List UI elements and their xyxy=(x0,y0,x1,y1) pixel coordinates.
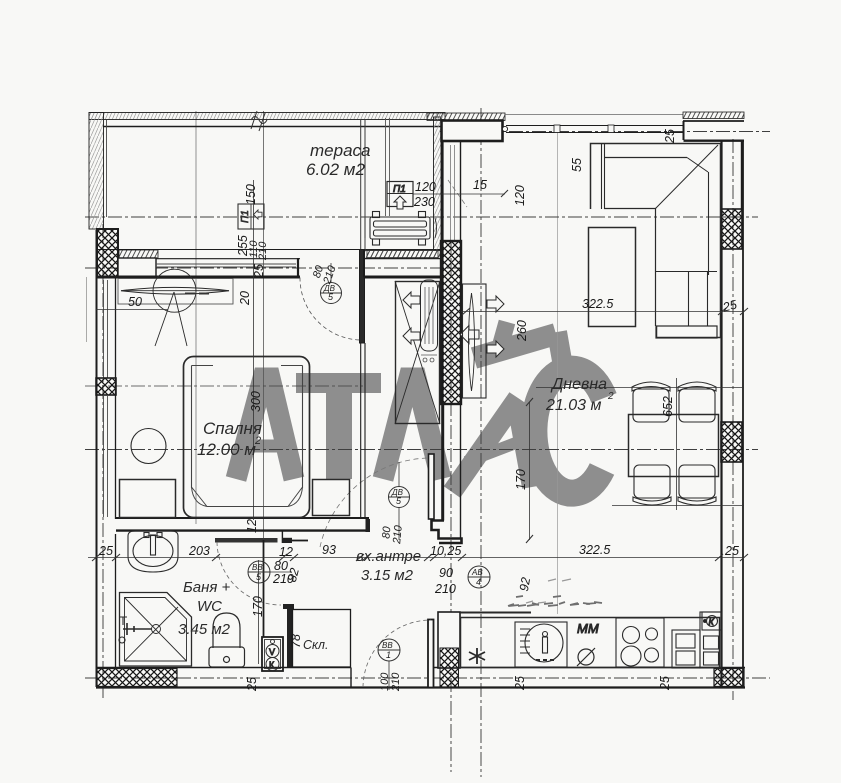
svg-text:ВВ: ВВ xyxy=(382,641,393,650)
svg-text:210: 210 xyxy=(390,672,402,692)
svg-text:Скл.: Скл. xyxy=(303,638,328,652)
svg-text:10,25: 10,25 xyxy=(430,544,461,558)
svg-text:3.15 м2: 3.15 м2 xyxy=(361,567,414,584)
svg-text:55: 55 xyxy=(570,158,584,172)
svg-text:90: 90 xyxy=(439,566,453,580)
svg-text:170: 170 xyxy=(514,469,528,490)
svg-text:15: 15 xyxy=(473,178,487,192)
svg-text:210: 210 xyxy=(257,241,269,261)
svg-text:Спалня: Спалня xyxy=(203,419,262,438)
svg-text:652: 652 xyxy=(661,396,675,417)
svg-text:12: 12 xyxy=(245,519,259,533)
svg-text:25: 25 xyxy=(724,544,739,558)
svg-text:Баня +: Баня + xyxy=(183,579,231,596)
svg-text:150: 150 xyxy=(244,184,258,205)
svg-text:тераса: тераса xyxy=(310,141,370,160)
svg-text:21.03 м: 21.03 м xyxy=(545,397,601,414)
svg-text:120: 120 xyxy=(513,185,527,206)
svg-text:120: 120 xyxy=(415,180,436,194)
svg-text:80: 80 xyxy=(274,559,288,573)
svg-text:322.5: 322.5 xyxy=(579,543,610,557)
svg-text:П1: П1 xyxy=(393,184,406,195)
svg-text:вх.антре: вх.антре xyxy=(356,548,421,565)
svg-text:ММ: ММ xyxy=(577,621,599,636)
svg-text:230: 230 xyxy=(413,195,435,209)
svg-text:25: 25 xyxy=(663,129,677,144)
svg-text:170: 170 xyxy=(251,596,265,617)
svg-text:12.00 м: 12.00 м xyxy=(197,440,256,459)
svg-text:4: 4 xyxy=(476,577,481,587)
svg-text:К: К xyxy=(709,617,715,627)
svg-text:25: 25 xyxy=(245,677,259,692)
svg-text:2: 2 xyxy=(607,391,614,402)
svg-text:25: 25 xyxy=(252,264,266,279)
svg-text:93: 93 xyxy=(322,543,336,557)
svg-text:Дневна: Дневна xyxy=(550,376,607,393)
svg-text:322.5: 322.5 xyxy=(582,297,613,311)
svg-text:25: 25 xyxy=(98,544,113,558)
svg-text:50: 50 xyxy=(128,295,142,309)
svg-text:6.02 м2: 6.02 м2 xyxy=(306,160,365,179)
svg-text:210: 210 xyxy=(391,524,405,545)
svg-text:П1: П1 xyxy=(240,210,251,223)
svg-text:1: 1 xyxy=(386,650,391,660)
svg-text:210: 210 xyxy=(434,582,456,596)
svg-text:2: 2 xyxy=(254,435,261,447)
svg-text:25: 25 xyxy=(513,676,527,691)
svg-text:300: 300 xyxy=(249,391,263,412)
svg-text:260: 260 xyxy=(515,320,529,342)
svg-text:210: 210 xyxy=(272,572,294,586)
svg-text:203: 203 xyxy=(188,544,210,558)
svg-text:20: 20 xyxy=(238,291,252,306)
svg-text:АВ: АВ xyxy=(471,568,483,577)
svg-text:WC: WC xyxy=(197,598,222,615)
svg-text:V: V xyxy=(269,647,275,657)
svg-text:3.45 м2: 3.45 м2 xyxy=(178,621,231,638)
svg-text:92: 92 xyxy=(517,576,533,592)
svg-text:К: К xyxy=(269,660,275,670)
svg-text:78: 78 xyxy=(289,634,303,648)
svg-text:12: 12 xyxy=(279,545,293,559)
svg-text:ВВ: ВВ xyxy=(252,563,263,572)
svg-text:25: 25 xyxy=(658,676,672,691)
